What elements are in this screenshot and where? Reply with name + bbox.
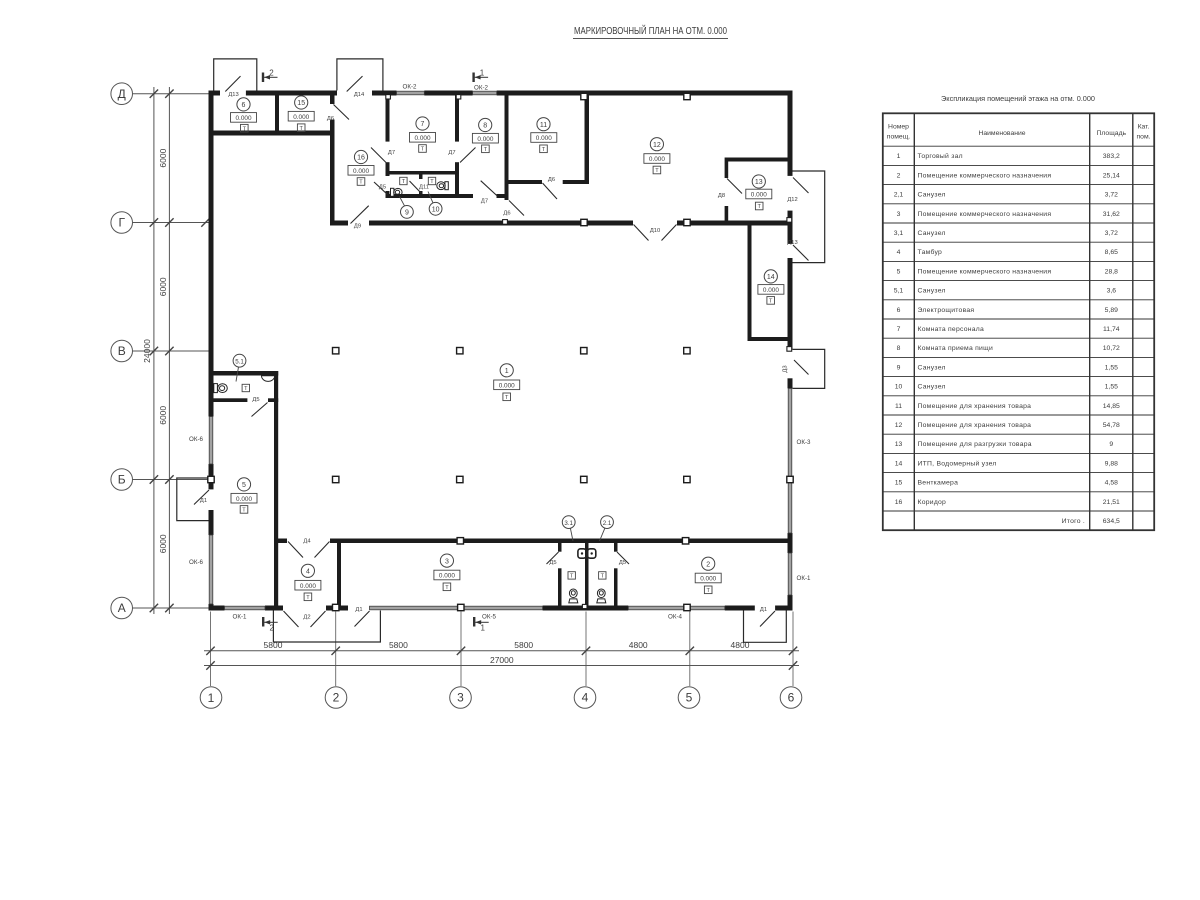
svg-text:2.1: 2.1 [603, 520, 612, 527]
svg-text:0.000: 0.000 [751, 192, 767, 199]
svg-text:МАРКИРОВОЧНЫЙ ПЛАН НА ОТМ. 0.0: МАРКИРОВОЧНЫЙ ПЛАН НА ОТМ. 0.000 [574, 25, 727, 37]
svg-text:Д13: Д13 [787, 240, 797, 246]
svg-text:Т: Т [484, 147, 488, 153]
svg-text:24000: 24000 [142, 339, 152, 363]
svg-text:Д6: Д6 [548, 177, 555, 183]
svg-text:Д13: Д13 [228, 92, 238, 98]
svg-text:Санузел: Санузел [918, 230, 946, 237]
svg-text:383,2: 383,2 [1103, 153, 1120, 160]
svg-text:5,1: 5,1 [894, 288, 904, 295]
svg-text:14: 14 [767, 274, 775, 281]
svg-text:1,55: 1,55 [1105, 384, 1118, 391]
svg-text:Т: Т [402, 179, 406, 185]
svg-text:2: 2 [706, 561, 710, 568]
svg-text:1,55: 1,55 [1105, 364, 1118, 371]
svg-text:Кат.: Кат. [1138, 124, 1150, 131]
svg-text:5: 5 [897, 268, 901, 275]
svg-text:2,1: 2,1 [894, 192, 904, 199]
svg-text:Итого .: Итого . [1062, 518, 1085, 525]
svg-text:13: 13 [755, 179, 763, 186]
svg-text:3: 3 [457, 691, 464, 705]
svg-text:Т: Т [299, 126, 303, 132]
svg-text:16: 16 [357, 155, 365, 162]
svg-text:31,62: 31,62 [1103, 211, 1120, 218]
svg-text:Г: Г [118, 216, 125, 230]
svg-text:3,6: 3,6 [1107, 288, 1117, 295]
svg-text:Т: Т [706, 588, 710, 594]
svg-text:16: 16 [895, 499, 903, 506]
svg-text:0.000: 0.000 [477, 136, 493, 143]
svg-text:10: 10 [432, 207, 440, 214]
svg-text:0.000: 0.000 [536, 135, 552, 142]
svg-text:помещ.: помещ. [887, 134, 911, 141]
svg-text:Д7: Д7 [481, 199, 488, 205]
svg-text:Санузел: Санузел [918, 384, 946, 391]
svg-text:8: 8 [897, 345, 901, 352]
svg-text:4,58: 4,58 [1105, 480, 1118, 487]
svg-text:11: 11 [540, 122, 547, 129]
svg-text:Комната персонала: Комната персонала [918, 326, 985, 333]
svg-text:Наименование: Наименование [978, 130, 1025, 137]
svg-text:0.000: 0.000 [236, 115, 252, 122]
svg-text:Д3: Д3 [783, 365, 789, 372]
svg-text:Д6: Д6 [327, 116, 334, 122]
svg-text:ОК-1: ОК-1 [797, 575, 811, 582]
svg-text:Венткамера: Венткамера [918, 480, 959, 487]
svg-text:ОК-2: ОК-2 [474, 85, 488, 92]
svg-text:Помещение для хранения товара: Помещение для хранения товара [918, 422, 1032, 429]
svg-text:3: 3 [445, 558, 449, 565]
svg-text:Д11: Д11 [419, 185, 429, 191]
svg-text:9: 9 [897, 364, 901, 371]
svg-text:2: 2 [897, 172, 901, 179]
svg-text:0.000: 0.000 [499, 382, 515, 389]
svg-text:Д5: Д5 [252, 397, 259, 403]
svg-text:4800: 4800 [629, 640, 648, 650]
svg-text:В: В [118, 344, 126, 358]
svg-text:Т: Т [570, 574, 574, 580]
svg-text:Д1: Д1 [355, 607, 362, 613]
svg-text:Д8: Д8 [718, 193, 725, 199]
svg-text:4: 4 [897, 249, 901, 256]
svg-text:10: 10 [895, 384, 903, 391]
svg-text:6: 6 [242, 102, 246, 109]
svg-text:5: 5 [242, 482, 246, 489]
svg-text:5.1: 5.1 [235, 358, 244, 365]
svg-text:Д1: Д1 [760, 607, 767, 613]
svg-text:ОК-1: ОК-1 [233, 614, 247, 621]
svg-text:Д7: Д7 [388, 150, 395, 156]
svg-text:0.000: 0.000 [763, 287, 779, 294]
svg-text:5,89: 5,89 [1105, 307, 1118, 314]
svg-text:Д5: Д5 [549, 560, 556, 566]
svg-text:54,78: 54,78 [1103, 422, 1120, 429]
svg-text:9: 9 [1109, 441, 1113, 448]
svg-text:634,5: 634,5 [1103, 518, 1120, 525]
svg-text:Т: Т [757, 204, 761, 210]
svg-text:ОК-6: ОК-6 [189, 436, 203, 443]
svg-text:Санузел: Санузел [918, 288, 946, 295]
svg-text:Д5: Д5 [619, 560, 626, 566]
svg-text:Площадь: Площадь [1097, 130, 1127, 137]
svg-text:21,51: 21,51 [1103, 499, 1120, 506]
svg-text:15: 15 [297, 100, 305, 107]
svg-text:Т: Т [242, 508, 246, 514]
svg-text:5800: 5800 [514, 640, 533, 650]
svg-text:Д14: Д14 [354, 92, 365, 98]
svg-text:6000: 6000 [158, 148, 168, 167]
svg-text:2: 2 [269, 624, 274, 633]
svg-text:Санузел: Санузел [918, 364, 946, 371]
svg-text:ОК-4: ОК-4 [668, 613, 682, 620]
svg-text:3.1: 3.1 [564, 520, 573, 527]
svg-text:0.000: 0.000 [236, 496, 252, 503]
svg-text:12: 12 [653, 142, 661, 149]
svg-text:14,85: 14,85 [1103, 403, 1120, 410]
svg-text:ОК-5: ОК-5 [482, 613, 496, 620]
svg-text:Помещение коммерческого назнач: Помещение коммерческого назначения [918, 172, 1052, 179]
svg-text:ИТП, Водомерный узел: ИТП, Водомерный узел [918, 459, 997, 467]
svg-text:0.000: 0.000 [300, 583, 316, 590]
svg-text:1: 1 [897, 153, 901, 160]
svg-text:Помещение коммерческого назнач: Помещение коммерческого назначения [918, 211, 1052, 218]
svg-text:Т: Т [243, 126, 247, 132]
svg-text:Д7: Д7 [448, 150, 455, 156]
svg-text:5: 5 [686, 691, 693, 705]
svg-text:Т: Т [306, 595, 310, 601]
svg-text:Д1: Д1 [200, 498, 207, 504]
svg-text:0.000: 0.000 [353, 168, 369, 175]
svg-text:6000: 6000 [158, 277, 168, 296]
svg-text:Номер: Номер [888, 124, 909, 131]
svg-text:28,8: 28,8 [1105, 268, 1118, 275]
svg-text:Д10: Д10 [650, 228, 660, 234]
svg-text:12: 12 [895, 422, 903, 429]
svg-text:27000: 27000 [490, 655, 514, 665]
svg-text:Т: Т [244, 386, 248, 392]
svg-text:Торговый зал: Торговый зал [918, 152, 963, 160]
svg-text:2: 2 [333, 691, 340, 705]
svg-text:Т: Т [769, 299, 773, 305]
svg-text:25,14: 25,14 [1103, 172, 1120, 179]
svg-text:Т: Т [430, 179, 434, 185]
svg-text:1: 1 [480, 69, 485, 78]
svg-text:11,74: 11,74 [1103, 326, 1120, 333]
svg-text:15: 15 [895, 480, 903, 487]
svg-text:13: 13 [895, 441, 903, 448]
svg-text:6000: 6000 [158, 534, 168, 553]
svg-text:Д2: Д2 [303, 615, 310, 621]
svg-text:Тамбур: Тамбур [918, 248, 943, 256]
svg-text:3,1: 3,1 [894, 230, 904, 237]
svg-text:2: 2 [269, 69, 274, 78]
svg-text:8,65: 8,65 [1105, 249, 1118, 256]
svg-text:0.000: 0.000 [700, 576, 716, 583]
svg-text:1: 1 [505, 368, 509, 375]
svg-text:Т: Т [655, 168, 659, 174]
svg-text:1: 1 [208, 691, 215, 705]
svg-text:Д9: Д9 [354, 224, 361, 230]
svg-text:Д4: Д4 [303, 539, 311, 545]
svg-text:А: А [118, 601, 126, 615]
svg-text:0.000: 0.000 [415, 135, 431, 142]
svg-text:4: 4 [306, 569, 310, 576]
svg-text:4800: 4800 [731, 640, 750, 650]
svg-text:Б: Б [118, 473, 126, 487]
svg-text:ОК-3: ОК-3 [797, 439, 811, 446]
svg-text:Д5: Д5 [379, 185, 386, 191]
svg-text:Т: Т [601, 574, 605, 580]
svg-text:0.000: 0.000 [293, 114, 309, 121]
svg-text:Т: Т [445, 585, 449, 591]
svg-text:Экспликация помещений этажа на: Экспликация помещений этажа на отм. 0.00… [941, 94, 1095, 103]
svg-text:ОК-2: ОК-2 [403, 84, 417, 91]
svg-text:7: 7 [421, 121, 425, 128]
svg-text:0.000: 0.000 [649, 156, 665, 163]
svg-text:Комната приема пищи: Комната приема пищи [918, 345, 994, 352]
svg-text:1: 1 [480, 624, 485, 633]
svg-text:10,72: 10,72 [1103, 345, 1120, 352]
svg-text:0.000: 0.000 [439, 573, 455, 580]
svg-text:Коридор: Коридор [918, 499, 947, 506]
svg-text:7: 7 [897, 326, 901, 333]
svg-text:пом.: пом. [1136, 134, 1150, 141]
svg-text:Электрощитовая: Электрощитовая [918, 307, 975, 314]
svg-text:Т: Т [542, 147, 546, 153]
svg-text:Помещение коммерческого назнач: Помещение коммерческого назначения [918, 268, 1052, 275]
svg-text:Санузел: Санузел [918, 192, 946, 199]
svg-text:Т: Т [359, 180, 363, 186]
svg-text:14: 14 [895, 460, 903, 467]
svg-text:3,72: 3,72 [1105, 230, 1118, 237]
svg-text:Д: Д [118, 87, 126, 101]
svg-text:11: 11 [895, 403, 902, 410]
svg-text:3,72: 3,72 [1105, 192, 1118, 199]
svg-text:5800: 5800 [389, 640, 408, 650]
svg-text:Помещение для разгрузки товара: Помещение для разгрузки товара [918, 441, 1032, 448]
svg-text:4: 4 [582, 691, 589, 705]
svg-text:9: 9 [405, 210, 409, 217]
svg-text:6: 6 [788, 691, 795, 705]
svg-text:8: 8 [483, 123, 487, 130]
svg-text:9,88: 9,88 [1105, 460, 1118, 467]
svg-text:Помещение для хранения товара: Помещение для хранения товара [918, 403, 1032, 410]
svg-text:Д6: Д6 [503, 211, 510, 217]
svg-text:6: 6 [897, 307, 901, 314]
svg-text:3: 3 [897, 211, 901, 218]
svg-text:Т: Т [421, 147, 425, 153]
svg-text:Д12: Д12 [787, 197, 797, 203]
svg-text:Т: Т [505, 395, 509, 401]
svg-text:ОК-6: ОК-6 [189, 559, 203, 566]
svg-text:6000: 6000 [158, 406, 168, 425]
